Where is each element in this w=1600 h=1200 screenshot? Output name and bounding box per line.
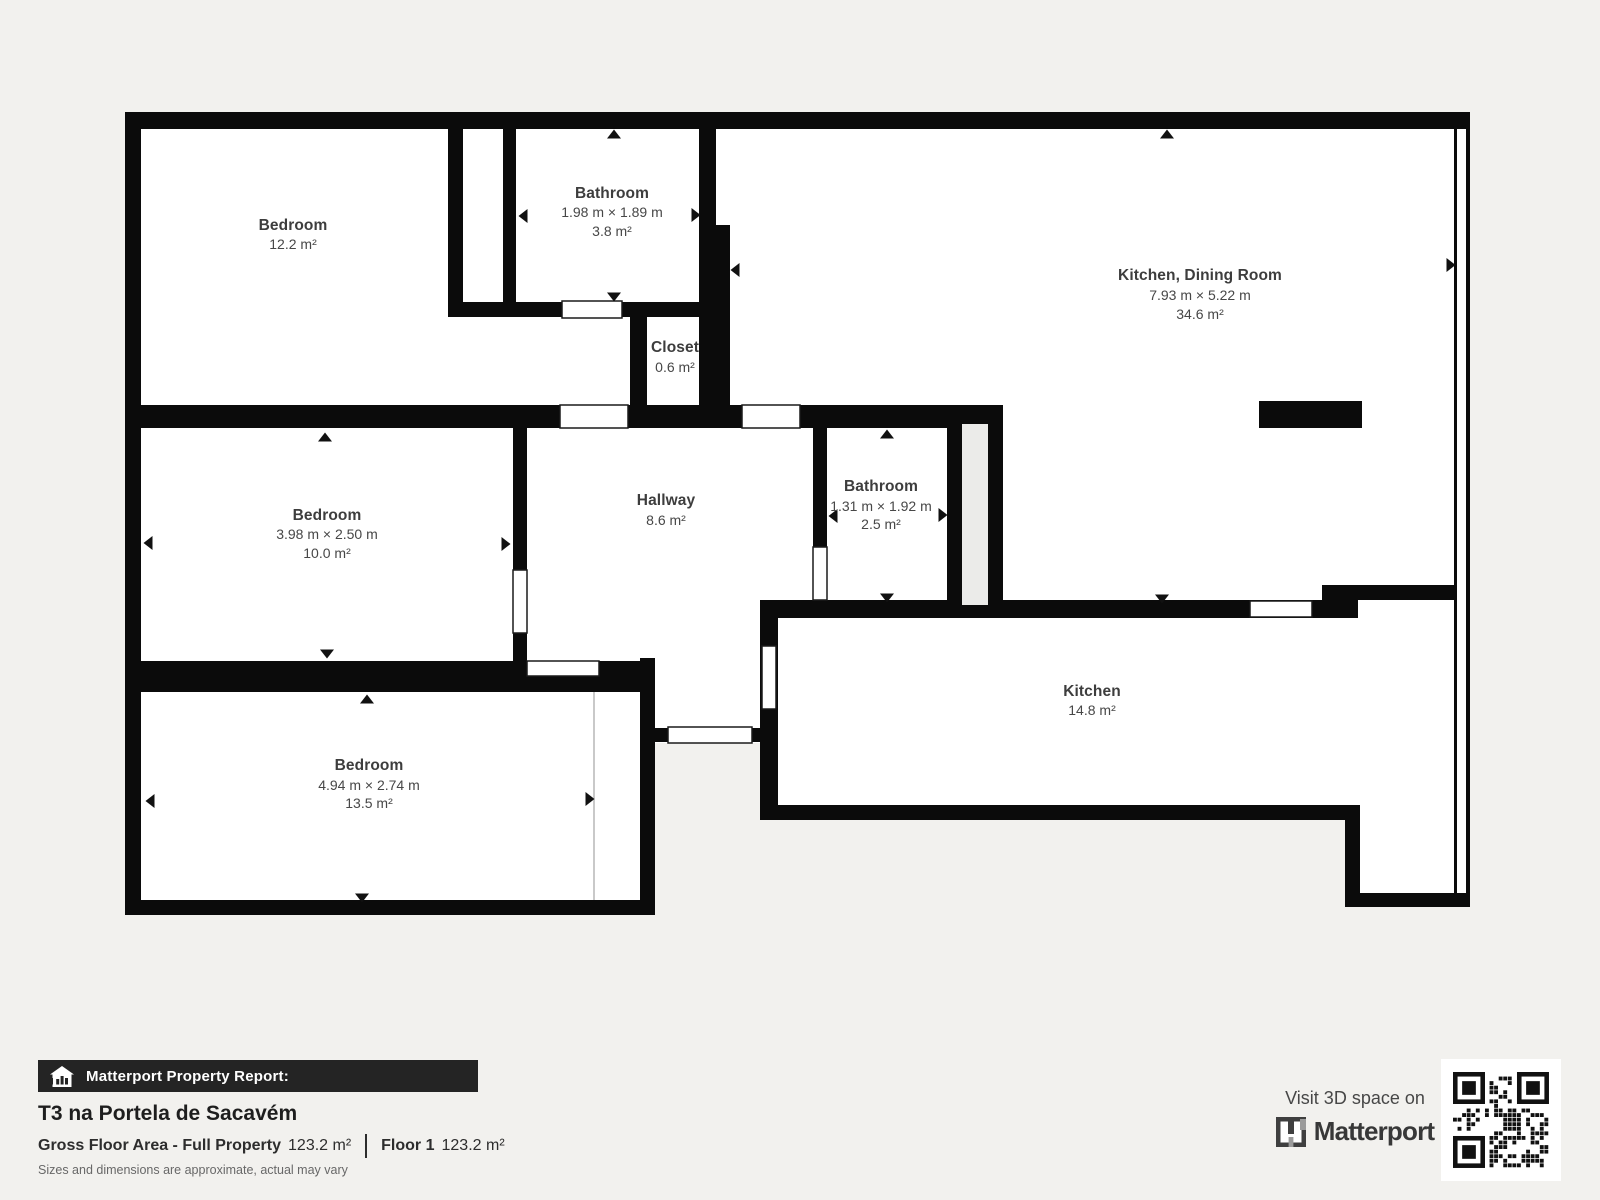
qr-module <box>1508 1113 1512 1117</box>
qr-module <box>1512 1127 1516 1131</box>
matterport-wordmark: Matterport <box>1314 1116 1435 1147</box>
qr-module <box>1540 1163 1544 1167</box>
qr-module <box>1494 1104 1498 1108</box>
qr-module <box>1494 1150 1498 1154</box>
wall-left <box>125 112 141 915</box>
qr-module <box>1485 1109 1489 1113</box>
qr-module <box>1526 1154 1530 1158</box>
qr-module <box>1526 1150 1530 1154</box>
qr-module <box>1494 1136 1498 1140</box>
qr-module <box>1512 1136 1516 1140</box>
room-label-closet-area: 0.6 m² <box>655 359 695 375</box>
qr-module <box>1508 1154 1512 1158</box>
qr-module <box>1508 1136 1512 1140</box>
qr-module <box>1522 1154 1526 1158</box>
qr-module <box>1544 1150 1548 1154</box>
wall-notch <box>527 661 599 676</box>
wall-kitchen-north-step <box>1322 585 1470 600</box>
qr-module <box>1490 1136 1494 1140</box>
door-kitchen <box>1250 601 1312 617</box>
gross-floor-area-label: Gross Floor Area - Full Property <box>38 1137 281 1155</box>
qr-module <box>1512 1163 1516 1167</box>
wall-closet-west <box>630 317 647 412</box>
qr-module <box>1503 1095 1507 1099</box>
qr-module <box>1531 1136 1535 1140</box>
room-label-bedroom2-area: 10.0 m² <box>303 545 351 561</box>
door-bathroom1 <box>562 301 622 318</box>
room-label-bedroom1-area: 12.2 m² <box>269 236 317 252</box>
wall-bottom-right <box>1345 893 1470 907</box>
qr-module <box>1467 1122 1471 1126</box>
qr-module <box>1540 1113 1544 1117</box>
qr-module <box>1503 1163 1507 1167</box>
floor-value: 123.2 m² <box>442 1137 505 1155</box>
qr-module <box>1490 1141 1494 1145</box>
qr-module <box>1508 1127 1512 1131</box>
report-bar-label: Matterport Property Report: <box>86 1068 289 1085</box>
qr-module <box>1535 1159 1539 1163</box>
qr-module <box>1494 1099 1498 1103</box>
disclaimer-text: Sizes and dimensions are approximate, ac… <box>38 1163 348 1177</box>
qr-module <box>1503 1077 1507 1081</box>
qr-module <box>1526 1109 1530 1113</box>
qr-module <box>1503 1122 1507 1126</box>
qr-module <box>1508 1122 1512 1126</box>
qr-module <box>1544 1122 1548 1126</box>
room-label-bedroom3-name: Bedroom <box>335 757 404 774</box>
door-bedroom1 <box>560 405 628 428</box>
qr-module <box>1503 1145 1507 1149</box>
qr-module <box>1499 1077 1503 1081</box>
divider <box>365 1134 367 1158</box>
qr-module <box>1490 1090 1494 1094</box>
room-label-bedroom2-dims: 3.98 m × 2.50 m <box>276 526 378 542</box>
qr-module <box>1503 1136 1507 1140</box>
qr-module <box>1503 1118 1507 1122</box>
room-label-bathroom1-dims: 1.98 m × 1.89 m <box>561 204 663 220</box>
qr-module <box>1508 1077 1512 1081</box>
wall-nook-west <box>448 128 463 309</box>
qr-module <box>1522 1159 1526 1163</box>
qr-module <box>1490 1150 1494 1154</box>
qr-module <box>1494 1131 1498 1135</box>
qr-module <box>1517 1127 1521 1131</box>
qr-module <box>1540 1131 1544 1135</box>
qr-module <box>1517 1136 1521 1140</box>
qr-module <box>1526 1163 1530 1167</box>
qr-module <box>1535 1131 1539 1135</box>
wall-bottom-left <box>125 900 655 915</box>
qr-module <box>1540 1122 1544 1126</box>
promo-block: Visit 3D space on Matterport <box>1235 1088 1475 1147</box>
room-label-kitchen-dining-area: 34.6 m² <box>1176 306 1224 322</box>
room-label-bedroom3-area: 13.5 m² <box>345 795 393 811</box>
qr-module <box>1544 1145 1548 1149</box>
visit-3d-text: Visit 3D space on <box>1235 1088 1475 1109</box>
qr-module <box>1499 1145 1503 1149</box>
qr-module <box>1490 1099 1494 1103</box>
qr-module <box>1471 1113 1475 1117</box>
window-line-outer <box>1466 129 1470 893</box>
qr-module <box>1458 1127 1462 1131</box>
qr-module <box>1458 1118 1462 1122</box>
qr-module <box>1494 1113 1498 1117</box>
qr-module <box>1508 1109 1512 1113</box>
qr-module <box>1490 1154 1494 1158</box>
qr-module <box>1508 1163 1512 1167</box>
qr-module <box>1467 1109 1471 1113</box>
qr-module <box>1453 1118 1457 1122</box>
room-label-bedroom2-name: Bedroom <box>293 507 362 524</box>
qr-module <box>1462 1113 1466 1117</box>
room-label-kitchen-area: 14.8 m² <box>1068 702 1116 718</box>
qr-code <box>1441 1059 1561 1181</box>
qr-module <box>1526 1159 1530 1163</box>
qr-module <box>1462 1081 1476 1095</box>
shaft <box>962 424 988 605</box>
window-line-inner <box>1454 129 1457 893</box>
door-hallway-kitchendining <box>742 405 800 428</box>
qr-module <box>1499 1095 1503 1099</box>
qr-module <box>1512 1113 1516 1117</box>
qr-module <box>1540 1136 1544 1140</box>
qr-module <box>1544 1118 1548 1122</box>
qr-module <box>1499 1109 1503 1113</box>
qr-module <box>1503 1113 1507 1117</box>
floorplan-report-page: Bedroom 12.2 m² Bathroom 1.98 m × 1.89 m… <box>0 0 1600 1200</box>
qr-module <box>1531 1154 1535 1158</box>
qr-module <box>1535 1141 1539 1145</box>
report-header-bar: Matterport Property Report: <box>38 1060 478 1092</box>
qr-module <box>1522 1136 1526 1140</box>
room-label-kitchen-dining-name: Kitchen, Dining Room <box>1118 267 1282 284</box>
qr-module <box>1535 1113 1539 1117</box>
qr-module <box>1476 1109 1480 1113</box>
qr-module <box>1531 1113 1535 1117</box>
property-title: T3 na Portela de Sacavém <box>38 1102 297 1126</box>
wall-mid-stub <box>599 661 655 676</box>
qr-module <box>1503 1127 1507 1131</box>
qr-module <box>1490 1086 1494 1090</box>
qr-module <box>1490 1163 1494 1167</box>
closet-partition-line <box>593 692 595 900</box>
qr-module <box>1503 1090 1507 1094</box>
qr-module <box>1535 1154 1539 1158</box>
room-label-kitchen-dining-dims: 7.93 m × 5.22 m <box>1149 287 1251 303</box>
qr-module <box>1467 1113 1471 1117</box>
house-report-icon <box>50 1066 74 1087</box>
wall-kitchen-west <box>760 600 778 820</box>
qr-module <box>1467 1118 1471 1122</box>
room-label-bathroom2-dims: 1.31 m × 1.92 m <box>830 498 932 514</box>
qr-module <box>1526 1122 1530 1126</box>
qr-module <box>1471 1122 1475 1126</box>
door-kitchen-west <box>762 646 776 709</box>
wall-top <box>125 112 1470 129</box>
qr-module <box>1531 1131 1535 1135</box>
floor-label: Floor 1 <box>381 1137 434 1155</box>
wall-bedroom3-east <box>640 658 655 915</box>
counter-island <box>1259 401 1362 428</box>
qr-module <box>1494 1145 1498 1149</box>
qr-module <box>1517 1122 1521 1126</box>
qr-module <box>1512 1109 1516 1113</box>
room-label-closet-name: Closet <box>651 339 699 356</box>
qr-module <box>1485 1113 1489 1117</box>
wall-kitchendining-west-upper <box>699 112 716 232</box>
qr-module <box>1476 1118 1480 1122</box>
room-label-bedroom1-name: Bedroom <box>259 217 328 234</box>
qr-module <box>1462 1145 1476 1159</box>
qr-module <box>1517 1118 1521 1122</box>
qr-module <box>1517 1113 1521 1117</box>
qr-module <box>1540 1127 1544 1131</box>
room-label-hallway-name: Hallway <box>637 492 696 509</box>
qr-module <box>1540 1150 1544 1154</box>
qr-module <box>1503 1159 1507 1163</box>
room-label-bathroom2-area: 2.5 m² <box>861 516 901 532</box>
room-label-hallway-area: 8.6 m² <box>646 512 686 528</box>
wall-kitchendining-west <box>699 225 730 428</box>
window-group <box>1454 129 1470 893</box>
qr-module <box>1494 1154 1498 1158</box>
wall-bathroom2-east <box>947 424 962 605</box>
room-label-bathroom2-name: Bathroom <box>844 478 918 495</box>
qr-module <box>1499 1154 1503 1158</box>
qr-module <box>1494 1086 1498 1090</box>
qr-module <box>1490 1081 1494 1085</box>
qr-module <box>1512 1122 1516 1126</box>
qr-module <box>1526 1081 1540 1095</box>
wall-shaft-east <box>988 424 1003 605</box>
qr-module <box>1494 1159 1498 1163</box>
room-label-bedroom3-dims: 4.94 m × 2.74 m <box>318 777 420 793</box>
wall-kitchen-south <box>760 805 1360 820</box>
qr-module <box>1508 1081 1512 1085</box>
qr-module <box>1499 1131 1503 1135</box>
qr-module <box>1526 1118 1530 1122</box>
qr-module <box>1508 1118 1512 1122</box>
qr-module <box>1531 1127 1535 1131</box>
qr-module <box>1522 1109 1526 1113</box>
qr-module <box>1544 1131 1548 1135</box>
qr-code-pattern <box>1441 1059 1561 1181</box>
gross-floor-area-value: 123.2 m² <box>288 1137 351 1155</box>
room-label-bathroom1-name: Bathroom <box>575 185 649 202</box>
qr-module <box>1531 1141 1535 1145</box>
qr-module <box>1494 1090 1498 1094</box>
door-bathroom2 <box>813 547 827 600</box>
qr-module <box>1512 1154 1516 1158</box>
area-summary-line: Gross Floor Area - Full Property 123.2 m… <box>38 1134 505 1158</box>
qr-module <box>1512 1118 1516 1122</box>
room-label-bathroom1-area: 3.8 m² <box>592 223 632 239</box>
door-entry <box>668 727 752 743</box>
wall-bedroom2-south <box>125 661 527 676</box>
door-bedroom2 <box>513 570 527 633</box>
wall-bathroom1-west <box>503 128 516 309</box>
wall-bedroom3-north <box>125 676 655 692</box>
qr-module <box>1540 1145 1544 1149</box>
qr-module <box>1499 1113 1503 1117</box>
qr-module <box>1517 1131 1521 1135</box>
qr-module <box>1512 1141 1516 1145</box>
qr-module <box>1508 1099 1512 1103</box>
qr-module <box>1540 1159 1544 1163</box>
qr-module <box>1490 1159 1494 1163</box>
qr-module <box>1467 1127 1471 1131</box>
floorplan-canvas: Bedroom 12.2 m² Bathroom 1.98 m × 1.89 m… <box>0 0 1600 1200</box>
wall-kitchen-step <box>1345 805 1360 907</box>
qr-module <box>1531 1159 1535 1163</box>
room-label-kitchen-name: Kitchen <box>1063 683 1121 700</box>
matterport-logo-icon <box>1276 1117 1306 1147</box>
qr-module <box>1499 1141 1503 1145</box>
qr-module <box>1494 1109 1498 1113</box>
qr-module <box>1517 1163 1521 1167</box>
qr-module <box>1503 1141 1507 1145</box>
